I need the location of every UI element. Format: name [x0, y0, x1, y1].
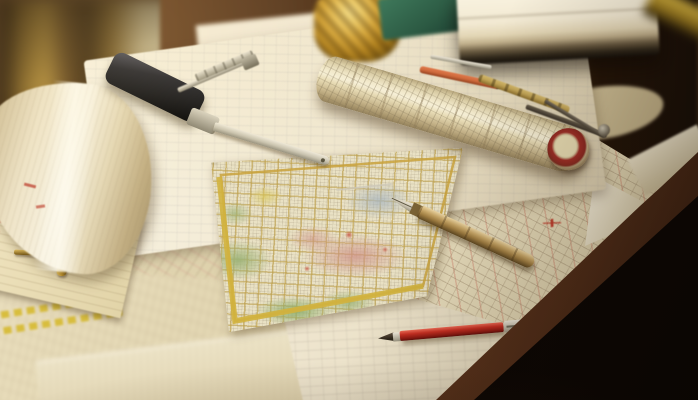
photo-cartographers-desk — [0, 0, 698, 400]
thick-book — [456, 0, 660, 65]
paper-fold-highlight — [33, 80, 100, 274]
blade-hole — [321, 157, 326, 162]
steel-divider-hinge — [598, 124, 610, 136]
